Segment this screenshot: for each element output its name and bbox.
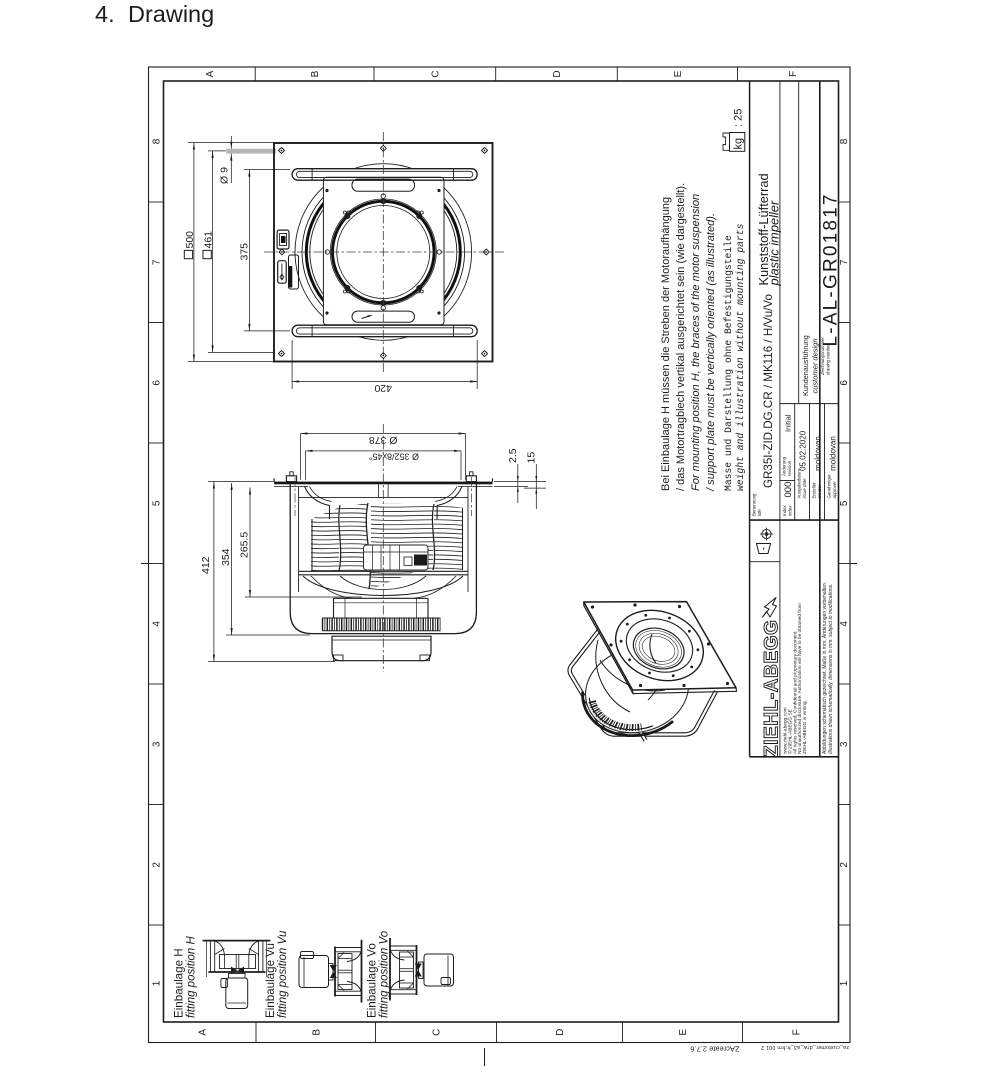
svg-text:drawing number: drawing number: [825, 344, 830, 375]
svg-text:revision: revision: [787, 460, 792, 476]
svg-text:Genehmiger: Genehmiger: [827, 474, 832, 499]
svg-text:plastic impeller: plastic impeller: [767, 200, 782, 286]
svg-text:weight and illustration withou: weight and illustration without mounting…: [735, 223, 746, 491]
svg-text:Einbaulage Vo: Einbaulage Vo: [366, 943, 379, 1018]
svg-text:5: 5: [152, 500, 163, 506]
svg-text:/ das Motortragblech vertikal: / das Motortragblech vertikal ausgericht…: [675, 183, 687, 491]
svg-text:Einbaulage H: Einbaulage H: [173, 948, 186, 1018]
svg-text:7: 7: [152, 259, 163, 265]
svg-text:ZIEHL-ABEGG: ZIEHL-ABEGG: [762, 620, 783, 758]
svg-text:ZIEHL-ABEGG in writing.: ZIEHL-ABEGG in writing.: [802, 700, 808, 754]
svg-text:8: 8: [839, 138, 850, 144]
svg-text:za_customer_drw_a3_fr.frm 001: za_customer_drw_a3_fr.frm 001 2: [761, 1044, 849, 1050]
svg-text:Ausgabedatum: Ausgabedatum: [797, 469, 802, 499]
svg-text:creator: creator: [817, 484, 822, 498]
svg-text:4: 4: [152, 621, 163, 627]
svg-text:For mounting position H, the b: For mounting position H, the braces of t…: [690, 194, 702, 491]
svg-text:kg: kg: [733, 138, 745, 150]
svg-text:2: 2: [152, 862, 163, 868]
svg-text:354: 354: [220, 548, 232, 566]
svg-text:500: 500: [184, 231, 196, 249]
svg-text:4: 4: [839, 621, 850, 627]
svg-text:Illustrations drawn schematica: Illustrations drawn schematically, dimen…: [828, 583, 834, 754]
svg-text:moldovan: moldovan: [829, 436, 838, 471]
svg-text:3: 3: [839, 741, 850, 747]
svg-text:moldovan: moldovan: [813, 436, 822, 471]
svg-text:issue date: issue date: [802, 478, 807, 499]
svg-text:375: 375: [239, 243, 251, 261]
svg-text:15: 15: [526, 452, 538, 464]
svg-text:2.5: 2.5: [507, 448, 519, 463]
svg-text:: 25: : 25: [733, 109, 745, 127]
svg-text:/ support plate must be vertic: / support plate must be vertically orien…: [705, 213, 717, 492]
svg-text:E: E: [678, 1029, 689, 1036]
svg-text:Änderung: Änderung: [782, 456, 787, 476]
svg-text:Index: Index: [782, 504, 787, 516]
svg-text:000: 000: [783, 482, 794, 498]
svg-text:A: A: [198, 1029, 209, 1036]
svg-text:index: index: [787, 505, 792, 516]
svg-text:Masse und Darstellung ohne Bef: Masse und Darstellung ohne Befestigungst…: [723, 235, 734, 491]
svg-text:Abbildungen schematisch gezeic: Abbildungen schematisch gezeichnet. Maße…: [821, 582, 828, 754]
svg-text:4.: 4.: [95, 1, 115, 27]
svg-text:B: B: [310, 70, 321, 77]
svg-text:6: 6: [839, 380, 850, 386]
svg-text:approver: approver: [832, 481, 837, 499]
svg-text:D: D: [555, 1029, 566, 1036]
svg-text:461: 461: [203, 231, 215, 249]
svg-text:Einbaulage Vu: Einbaulage Vu: [264, 943, 277, 1018]
svg-text:5: 5: [839, 500, 850, 506]
svg-text:420: 420: [374, 382, 392, 394]
svg-text:412: 412: [200, 556, 212, 574]
svg-text:05.02.2020: 05.02.2020: [798, 430, 807, 471]
svg-text:F: F: [788, 71, 799, 77]
svg-text:Ersteller: Ersteller: [812, 482, 817, 499]
svg-text:ZAcreate 2.7.6: ZAcreate 2.7.6: [690, 1045, 739, 1054]
svg-text:customer design: customer design: [810, 338, 819, 393]
svg-text:GR35I-ZID.DG.CR / MK116 / H/Vu: GR35I-ZID.DG.CR / MK116 / H/Vu/Vo: [762, 294, 775, 488]
svg-text:Drawing: Drawing: [128, 1, 214, 27]
svg-text:Initial: Initial: [783, 414, 792, 432]
svg-text:Ø 9: Ø 9: [219, 167, 231, 184]
svg-text:B: B: [312, 1029, 323, 1036]
svg-text:Ø 352/8x45°: Ø 352/8x45°: [368, 451, 419, 461]
svg-text:Kundenausführung: Kundenausführung: [801, 335, 810, 396]
svg-text:F: F: [792, 1029, 803, 1035]
svg-text:C: C: [432, 1029, 443, 1036]
svg-text:2: 2: [839, 862, 850, 868]
svg-text:fitting position H: fitting position H: [186, 935, 198, 1018]
svg-text:265.5: 265.5: [238, 532, 250, 558]
svg-text:Bei Einbaulage H müssen die St: Bei Einbaulage H müssen die Streben der …: [660, 197, 672, 491]
svg-text:D: D: [552, 70, 563, 77]
svg-text:8: 8: [152, 138, 163, 144]
svg-text:A: A: [205, 70, 216, 77]
svg-text:1: 1: [839, 980, 850, 986]
svg-text:3: 3: [152, 741, 163, 747]
svg-text:E: E: [673, 70, 684, 77]
svg-text:C: C: [431, 70, 442, 77]
svg-text:L-AL-GR01817: L-AL-GR01817: [820, 192, 841, 346]
svg-text:6: 6: [152, 380, 163, 386]
svg-text:fitting position Vo: fitting position Vo: [379, 930, 391, 1018]
svg-text:fitting position Vu: fitting position Vu: [277, 930, 289, 1018]
svg-text:title: title: [757, 509, 762, 516]
svg-text:1: 1: [152, 980, 163, 986]
